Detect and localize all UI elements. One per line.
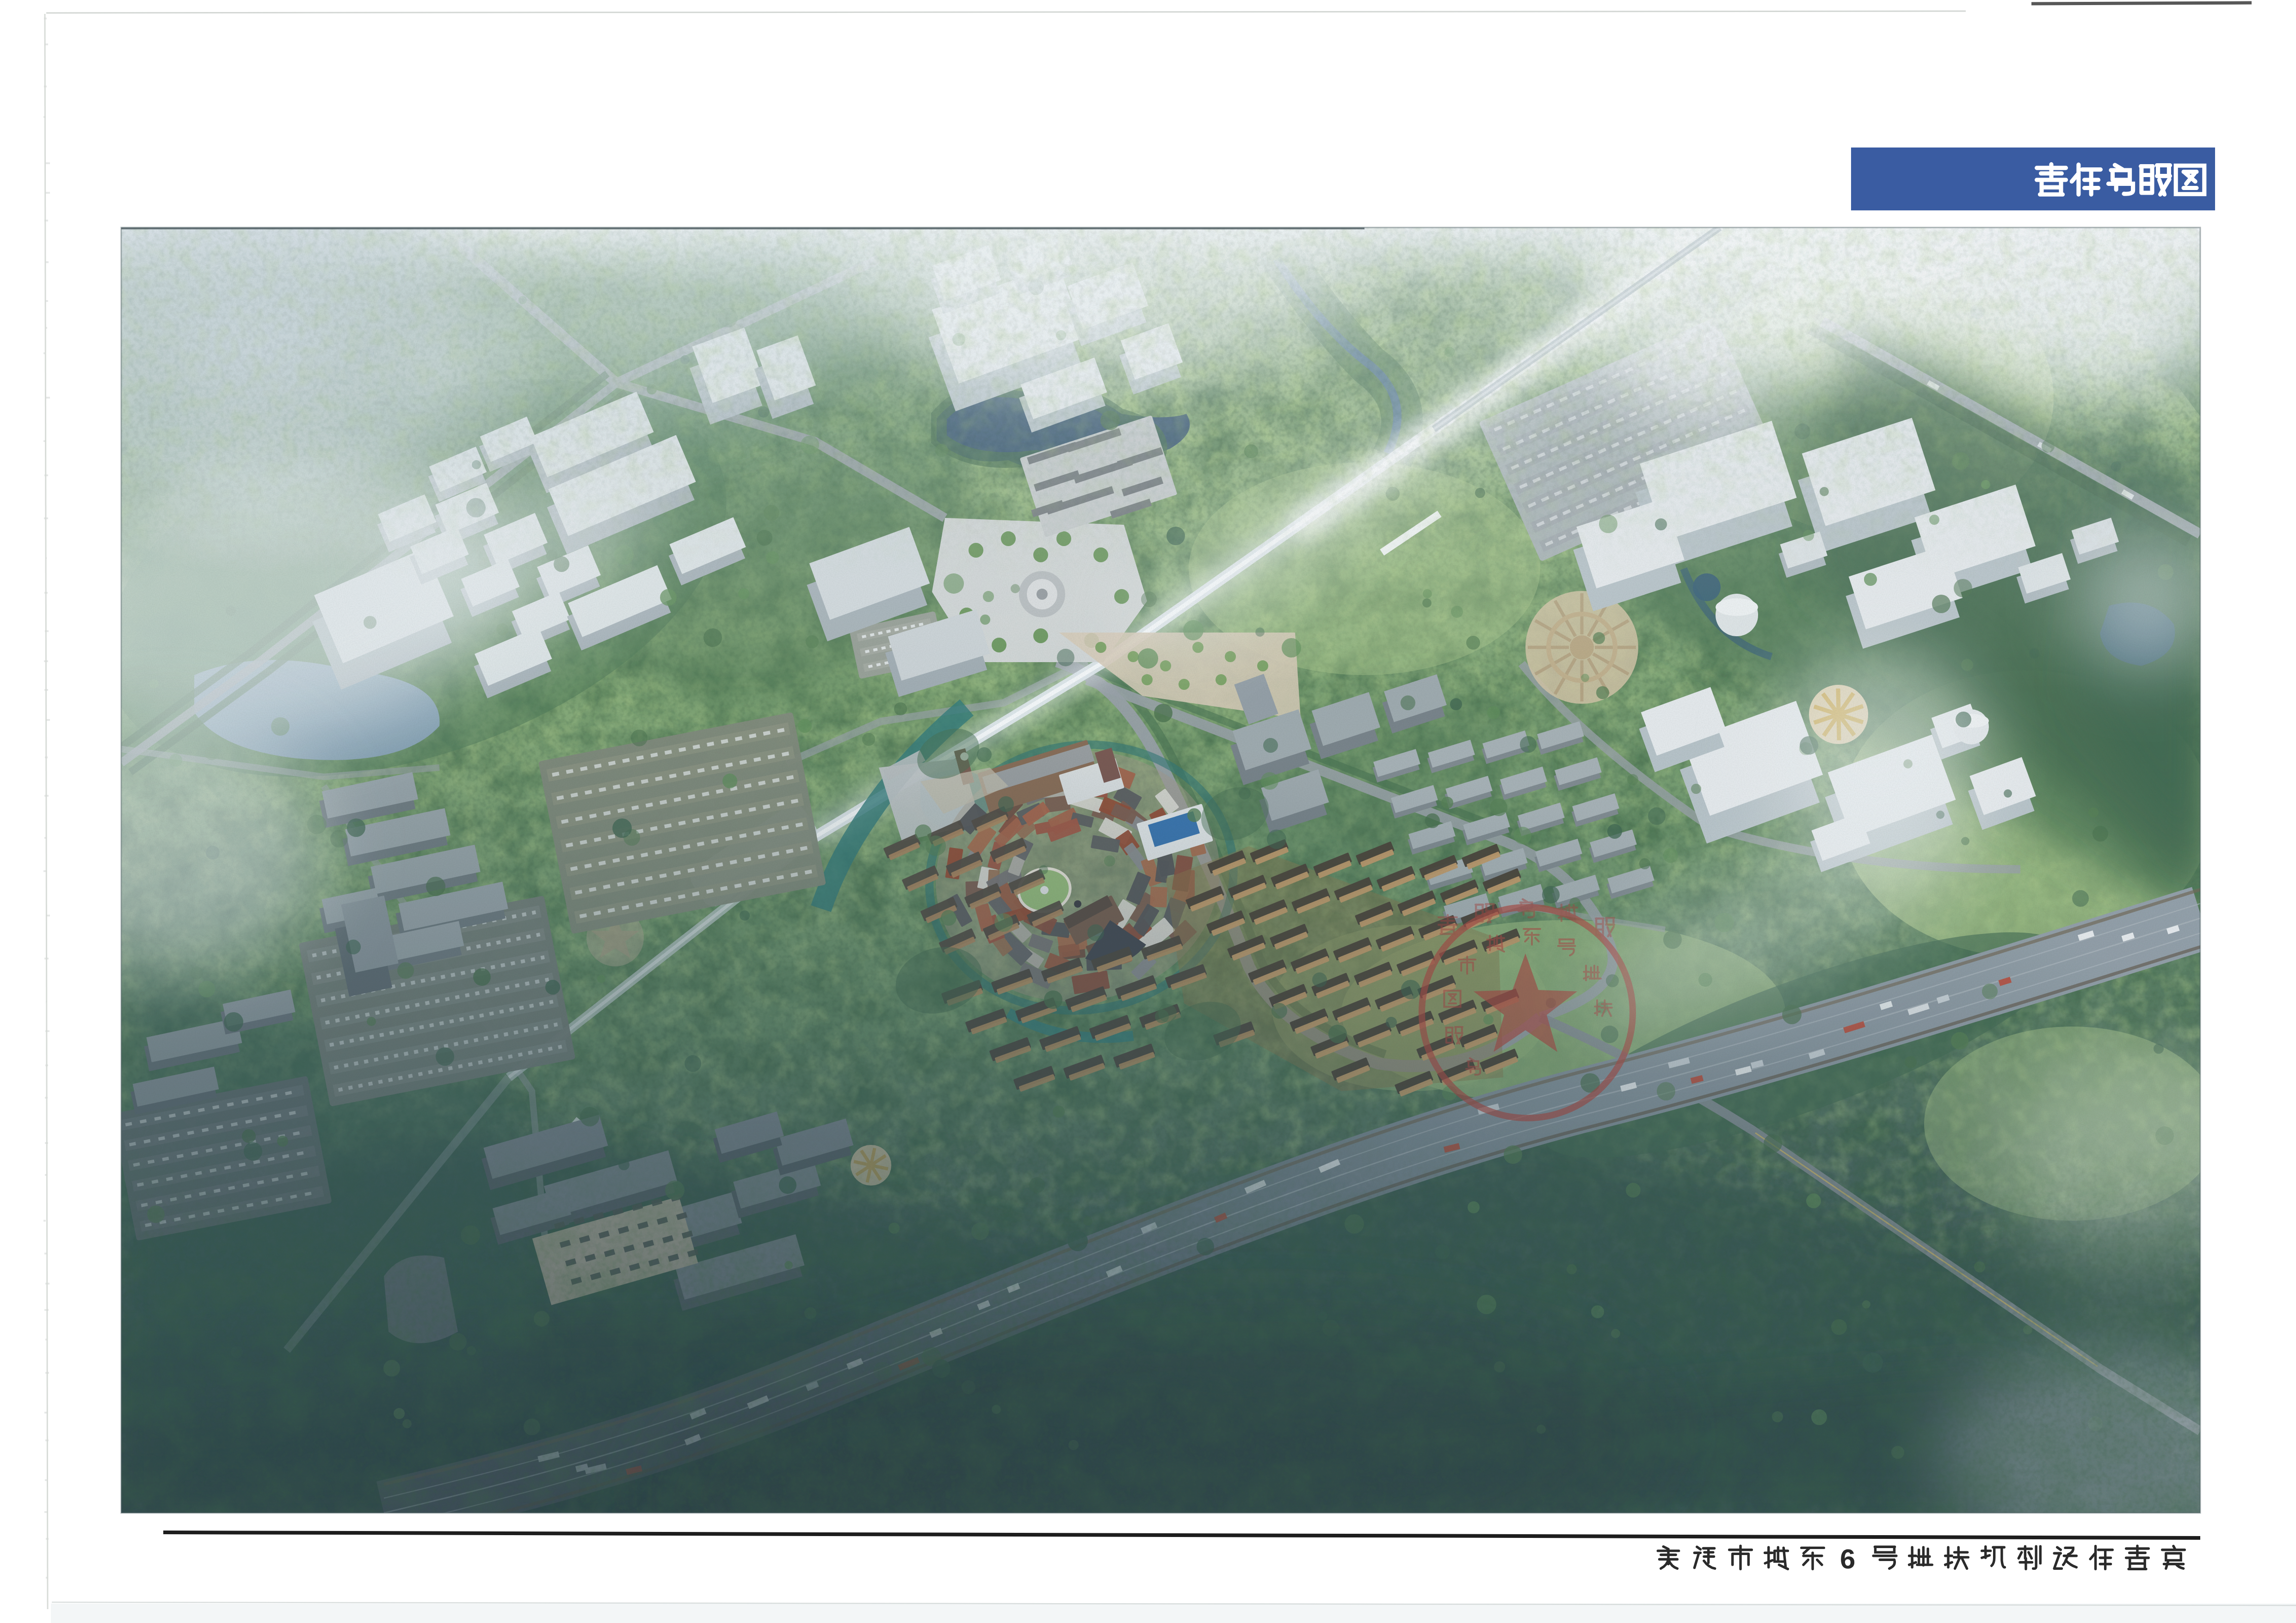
svg-text:6: 6 [1840,1543,1855,1574]
